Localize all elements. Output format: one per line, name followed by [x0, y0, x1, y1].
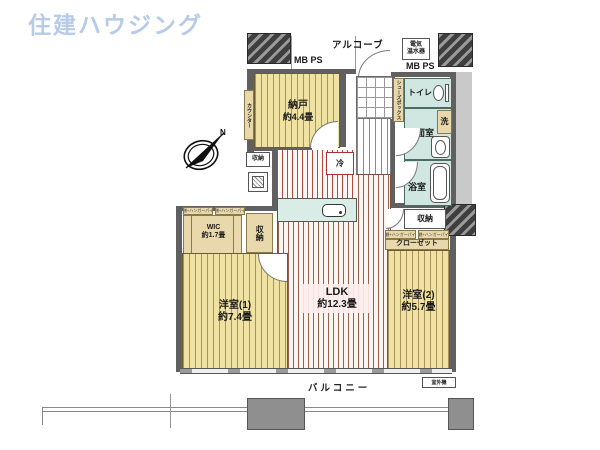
balcony-label: バルコニー: [308, 383, 370, 394]
kitchen-counter: [277, 198, 357, 222]
shelf-note-text: 枕棚+ハンガーパイプ: [183, 208, 213, 214]
room-bathroom-label: 浴室: [408, 182, 426, 193]
shelf-note-text: 枕棚+ハンガーパイプ: [385, 232, 416, 238]
wall-nando-right: [340, 73, 346, 147]
water-heater-label-2: 温水器: [407, 49, 425, 56]
entrance-door-arc: [358, 50, 390, 78]
water-heater-label-1: 電気: [410, 42, 422, 49]
laundry-label: 洗: [441, 117, 449, 127]
storage-left-label: 収納: [255, 225, 265, 241]
outdoor-unit-label: 室外機: [431, 380, 446, 386]
exterior-band-right: [456, 72, 472, 206]
mbps-right-label: MB PS: [406, 61, 435, 72]
column-top-right: [438, 33, 473, 67]
bathtub-icon: [430, 163, 450, 203]
balcony-box-left: [247, 398, 305, 430]
room-ldk-label: LDK 約12.3畳: [301, 284, 373, 313]
storage-kitchen-label: 収納: [252, 156, 264, 163]
closet: クローゼット: [385, 239, 449, 250]
alcove-label: アルコーブ: [332, 40, 384, 51]
storage-right: 収納: [404, 209, 446, 229]
fridge-label: 冷: [336, 159, 344, 169]
closet-shelf-note-1: 枕棚+ハンガーパイプ: [385, 230, 416, 239]
room-wic-label: WIC 約1.7畳: [193, 224, 234, 241]
compass-icon: N: [180, 126, 230, 178]
counter-label: カウンター: [246, 103, 252, 128]
storage-right-door-arc: [386, 209, 404, 229]
storage-left: 収納: [246, 213, 273, 253]
water-heater-box: 電気 温水器: [402, 38, 430, 60]
room-toilet-label: トイレ: [408, 88, 432, 98]
storage-right-label: 収納: [417, 214, 433, 224]
outdoor-unit: 室外機: [422, 377, 456, 388]
wic-shelf-note-1: 枕棚+ハンガーパイプ: [183, 207, 213, 215]
agency-logo: 住建ハウジング: [28, 12, 203, 40]
wall-top-2: [391, 72, 456, 77]
floor-plan: 住建ハウジング N MB PS アルコーブ 電気 温水器 MB PS シューズボ…: [0, 0, 600, 450]
closet-shelf-note-2: 枕棚+ハンガーパイプ: [418, 230, 449, 239]
room-west1-label: 洋室(1) 約7.4畳: [195, 300, 275, 324]
closet-label: クローゼット: [396, 240, 438, 248]
counter-sink-icon: [322, 204, 346, 217]
shelf-note-text: 枕棚+ハンガーパイプ: [215, 208, 245, 214]
room-wic: WIC 約1.7畳: [183, 215, 242, 255]
balcony-box-right: [448, 398, 474, 430]
balcony-railing-end: [42, 407, 43, 425]
wic-shelf-note-2: 枕棚+ハンガーパイプ: [215, 207, 245, 215]
laundry-space: 洗: [437, 110, 452, 134]
room-nando-label: 納戸 約4.4畳: [266, 100, 330, 123]
storage-kitchen: 収納: [246, 152, 270, 167]
genkan-tile: [356, 76, 393, 120]
sink-icon: [431, 136, 450, 158]
balcony-divider-line: [170, 394, 171, 428]
shoebox: シューズボックス: [393, 78, 404, 122]
window-wall: [180, 368, 452, 374]
toilet-icon: [433, 82, 449, 104]
hallway: [356, 118, 391, 176]
fridge-box: 冷: [326, 152, 354, 175]
column-top-left: [247, 33, 291, 64]
shelf-note-text: 枕棚+ハンガーパイプ: [418, 232, 449, 238]
mbps-left-label: MB PS: [294, 55, 323, 66]
room-west2-label: 洋室(2) 約5.7畳: [392, 290, 445, 314]
compass-north-label: N: [220, 128, 226, 137]
shoebox-label: シューズボックス: [396, 80, 402, 120]
hatched-fixture-icon: [248, 172, 268, 192]
counter: カウンター: [244, 90, 254, 140]
